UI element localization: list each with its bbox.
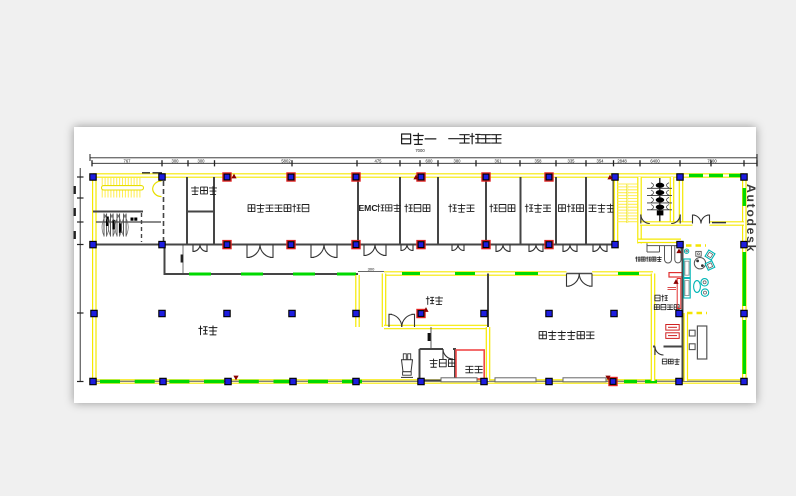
svg-text:2848: 2848 — [617, 159, 627, 164]
svg-text:300: 300 — [198, 159, 206, 164]
svg-text:335: 335 — [568, 159, 576, 164]
svg-text:7000: 7000 — [415, 148, 425, 153]
svg-text:300: 300 — [172, 159, 180, 164]
svg-text:767: 767 — [124, 159, 132, 164]
svg-text:5802: 5802 — [281, 159, 291, 164]
svg-text:600: 600 — [426, 159, 434, 164]
svg-text:EMC: EMC — [358, 203, 377, 213]
svg-text:475: 475 — [375, 159, 383, 164]
svg-text:358: 358 — [535, 159, 543, 164]
svg-text:6400: 6400 — [650, 159, 660, 164]
svg-text:354: 354 — [597, 159, 605, 164]
svg-text:7500: 7500 — [707, 159, 717, 164]
svg-text:Autodesk: Autodesk — [744, 184, 758, 253]
svg-text:380: 380 — [454, 159, 462, 164]
svg-text:300: 300 — [368, 267, 375, 272]
svg-text:361: 361 — [495, 159, 503, 164]
